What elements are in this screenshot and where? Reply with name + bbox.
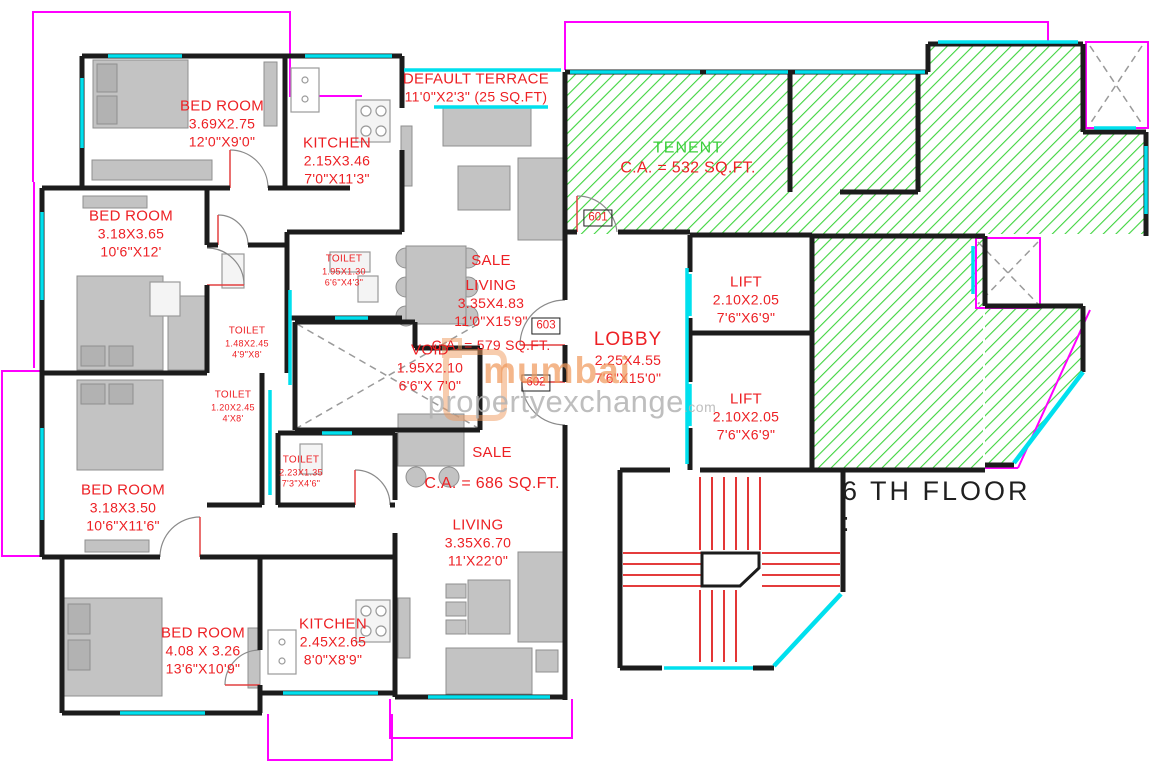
unit-type: SALE: [424, 443, 559, 462]
room-label-toilet-mid: TOILET 1.48X2.45 4'9"X8': [225, 326, 269, 361]
room-area: C.A. = 532 SQ.FT.: [620, 159, 755, 179]
room-dim-ft: 12'0"X9'0": [180, 134, 264, 152]
room-name: LIFT: [713, 390, 780, 409]
room-label-toilet-low: TOILET 1.20X2.45 4'X8': [211, 390, 255, 425]
room-dim-ft: 8'0"X8'9": [299, 652, 367, 670]
room-label-bedroom-top-left: BED ROOM 3.69X2.75 12'0"X9'0": [180, 97, 264, 152]
room-name: LIVING: [445, 516, 512, 535]
room-label-sale-lower: SALE C.A. = 686 SQ.FT.: [424, 443, 559, 495]
room-label-toilet-top: TOILET 1.95X1.30 6'6"X4'3": [322, 254, 366, 289]
room-dim-m: 3.69X2.75: [180, 116, 264, 134]
room-label-tenant: TENENT C.A. = 532 SQ.FT.: [620, 139, 755, 180]
room-dim-ft: 11'X22'0": [445, 553, 512, 571]
room-dim-ft: 13'6"X10'9": [161, 661, 245, 679]
staircase: [623, 477, 840, 662]
room-size: 11'0"X2'3" (25 SQ.FT): [403, 89, 549, 107]
room-name: LIFT: [713, 273, 780, 292]
room-label-lift-lower: LIFT 2.10X2.05 7'6"X6'9": [713, 390, 780, 445]
watermark-brand-name: propertyexchange: [428, 384, 684, 419]
room-name: TENENT: [620, 139, 755, 159]
room-area: C.A. = 686 SQ.FT.: [424, 474, 559, 494]
room-dim-m: 3.35X4.83: [431, 295, 550, 313]
room-dim-ft: 10'6"X11'6": [81, 518, 165, 536]
room-dim-m: 1.95X2.10: [397, 360, 464, 378]
room-label-toilet-attached: TOILET 2.23X1.35 7'3"X4'6": [279, 455, 323, 490]
room-label-bedroom-lower-left: BED ROOM 3.18X3.50 10'6"X11'6": [81, 481, 165, 536]
room-name: TOILET: [211, 390, 255, 403]
room-name: TOILET: [225, 326, 269, 339]
room-dim-m: 2.23X1.35: [279, 467, 323, 478]
room-name: LOBBY: [594, 328, 662, 352]
floor-plan-page: BED ROOM 3.69X2.75 12'0"X9'0" KITCHEN 2.…: [0, 0, 1154, 768]
room-name: KITCHEN: [299, 615, 367, 634]
room-dim-ft: 4'X8': [211, 413, 255, 424]
room-dim-ft: 10'6"X12': [89, 244, 173, 262]
room-dim-ft: 6'6"X4'3": [322, 277, 366, 288]
room-dim-m: 3.18X3.65: [89, 226, 173, 244]
watermark-brand-tld: .com: [684, 399, 716, 415]
room-label-bedroom-mid-left: BED ROOM 3.18X3.65 10'6"X12': [89, 207, 173, 262]
unit-number-603: 603: [531, 318, 560, 335]
watermark-brand-bottom: propertyexchange.com: [428, 384, 717, 420]
room-label-bedroom-bottom: BED ROOM 4.08 X 3.26 13'6"X10'9": [161, 624, 245, 679]
room-label-lift-upper: LIFT 2.10X2.05 7'6"X6'9": [713, 273, 780, 328]
floor-title: 6 TH FLOOR :: [842, 476, 1050, 538]
unit-type: SALE: [431, 251, 550, 270]
room-dim-m: 2.15X3.46: [303, 153, 371, 171]
room-dim-m: 1.48X2.45: [225, 338, 269, 349]
room-name: BED ROOM: [161, 624, 245, 643]
room-name: LIVING: [431, 276, 550, 295]
room-dim-ft: 4'9"X8': [225, 349, 269, 360]
room-label-living-lower: LIVING 3.35X6.70 11'X22'0": [445, 516, 512, 571]
room-label-kitchen-bottom: KITCHEN 2.45X2.65 8'0"X8'9": [299, 615, 367, 670]
room-dim-ft: 7'3"X4'6": [279, 478, 323, 489]
room-dim-m: 2.10X2.05: [713, 292, 780, 310]
unit-number-601: 601: [583, 210, 612, 227]
room-dim-m: 3.35X6.70: [445, 535, 512, 553]
room-name: BED ROOM: [89, 207, 173, 226]
room-label-kitchen-top: KITCHEN 2.15X3.46 7'0"X11'3": [303, 134, 371, 189]
room-dim-m: 2.10X2.05: [713, 409, 780, 427]
room-name: BED ROOM: [81, 481, 165, 500]
room-name: TOILET: [322, 254, 366, 267]
room-dim-m: 1.20X2.45: [211, 402, 255, 413]
room-dim-m: 3.18X3.50: [81, 500, 165, 518]
room-dim-ft: 7'6"X6'9": [713, 427, 780, 445]
room-name: KITCHEN: [303, 134, 371, 153]
room-dim-m: 1.95X1.30: [322, 266, 366, 277]
room-name: DEFAULT TERRACE: [403, 69, 549, 88]
room-name: BED ROOM: [180, 97, 264, 116]
room-dim-m: 4.08 X 3.26: [161, 643, 245, 661]
room-name: TOILET: [279, 455, 323, 468]
room-label-sale-living: SALE LIVING 3.35X4.83 11'0"X15'9" C.A. =…: [431, 251, 550, 355]
room-dim-ft: 7'6"X6'9": [713, 310, 780, 328]
room-label-terrace: DEFAULT TERRACE 11'0"X2'3" (25 SQ.FT): [403, 69, 549, 106]
room-dim-m: 2.45X2.65: [299, 634, 367, 652]
room-dim-ft: 7'0"X11'3": [303, 171, 371, 189]
